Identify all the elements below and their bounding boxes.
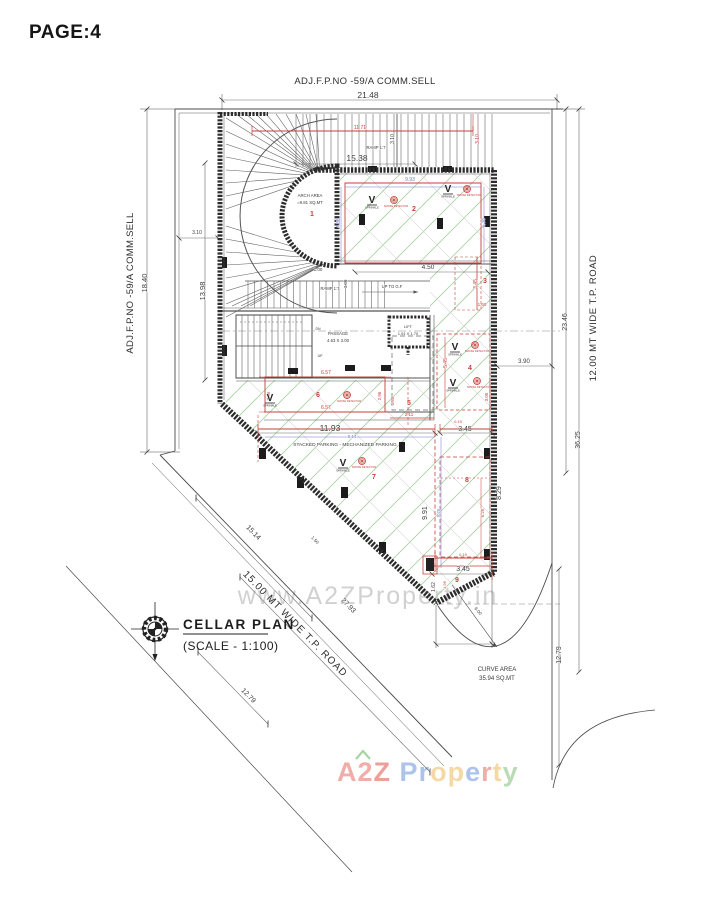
- sprinkler-icon: V: [445, 184, 452, 195]
- dimension-label: 8.14: [348, 434, 357, 439]
- dimension-label: 1.91 X 1.70: [398, 331, 419, 336]
- dimension-label: 23.46: [562, 313, 569, 331]
- smoke-detector-label: SMOKE DETECTOR: [352, 465, 376, 469]
- dimension-label: 4.38: [336, 218, 342, 228]
- plan-title: CELLAR PLAN: [183, 617, 295, 632]
- dimension-label: STACKED PARKING - MECHANIZED PARKING: [293, 442, 397, 448]
- dimension-label: 1.00: [314, 267, 323, 272]
- adjacent-plot-label-top: ADJ.F.P.NO -59/A COMM.SELL: [294, 76, 435, 87]
- sprinkler-label: SPRINKLE: [263, 404, 277, 408]
- parking-hatch-rightstrip: [0, 120, 710, 660]
- column-block: [359, 214, 365, 225]
- dimension-label: 2.11: [405, 412, 414, 417]
- dimension-label: 3.45: [473, 279, 479, 289]
- smoke-detector-label: SMOKE DETECTOR: [384, 204, 408, 208]
- sprinkler-label: SPRINKLE: [448, 353, 462, 357]
- dimension-label: 6.57: [321, 405, 331, 411]
- sprinkler-icon: V: [340, 458, 347, 469]
- smoke-detector-label: SMOKE DETECTOR: [465, 349, 489, 353]
- sprinkler-label: SPRINKLE: [336, 469, 350, 473]
- north-compass-icon: [131, 602, 179, 661]
- dimension-label: 12.79: [239, 687, 256, 705]
- column-block: [381, 365, 391, 371]
- dimension-label: 1.62: [431, 582, 437, 592]
- dimension-label: 3.45: [456, 566, 470, 573]
- parking-hatch-upper: [0, 120, 710, 660]
- dimension-label: ARCH AREA: [298, 193, 323, 198]
- sprinkler-icon: V: [450, 378, 457, 389]
- column-block: [222, 345, 227, 356]
- parking-space-number: 1: [310, 211, 314, 218]
- dimension-label: CURVE AREA: [478, 667, 517, 673]
- smoke-detector-icon: [474, 378, 481, 385]
- dimension-label: LIFT: [404, 324, 413, 329]
- drawing-sheet: { "page_label": "PAGE:4", "title": { "na…: [0, 0, 710, 919]
- sprinkler-label: SPRINKLE: [446, 389, 460, 393]
- smoke-detector-label: SMOKE DETECTOR: [337, 399, 361, 403]
- smoke-detector-icon: [344, 392, 351, 399]
- dimension-label: 5.45: [443, 358, 449, 368]
- stair-core: [236, 315, 312, 378]
- tip-column-block: [426, 558, 434, 571]
- column-block: [259, 448, 266, 459]
- dimension-label: 9.91: [422, 506, 429, 520]
- parking-space-number: 4: [468, 365, 472, 372]
- sprinkler-icon: V: [267, 393, 274, 404]
- dimension-label: 3.00: [343, 279, 348, 288]
- smoke-detector-icon: [359, 458, 366, 465]
- dimension-label: UP TO G.F: [382, 284, 403, 289]
- dimension-label: PASSAGE: [328, 331, 348, 336]
- dimension-label: 3.90: [518, 359, 530, 365]
- parking-space-number: 9: [455, 577, 459, 584]
- up-arrowhead-icon: [414, 290, 419, 293]
- dimension-label: 6.57: [321, 370, 331, 376]
- dimension-label: 1.50: [310, 535, 320, 545]
- sprinkler-label: SPRINKLE: [365, 206, 379, 210]
- dimension-label: 0.19: [459, 552, 468, 557]
- dimension-label: DN: [315, 327, 321, 331]
- column-block: [222, 257, 227, 268]
- sprinkler-icon: V: [452, 342, 459, 353]
- dimension-label: RAMP 1:7: [320, 286, 340, 291]
- dimension-label: RAMP 1:7: [366, 145, 386, 150]
- a2z-property-logo: A2Z Property: [337, 757, 519, 787]
- dimension-label: 11.71: [354, 125, 366, 131]
- dimension-label: 21.48: [357, 90, 379, 100]
- dimension-label: 8.29: [496, 486, 503, 500]
- dimension-label: 13.98: [198, 282, 207, 301]
- dimension-label: 18.40: [140, 274, 149, 293]
- dimension-label: 15.38: [346, 153, 368, 163]
- smoke-detector-icon: [464, 186, 471, 193]
- column-block: [288, 368, 298, 374]
- smoke-detector-label: SMOKE DETECTOR: [457, 193, 481, 197]
- dimension-label: 2.96: [377, 391, 382, 400]
- sprinkler-label: SPRINKLE: [441, 195, 455, 199]
- dimension-label: 1.60: [478, 302, 487, 307]
- dimension-label: 3.10: [192, 230, 202, 236]
- dimension-label: 6.25: [480, 508, 485, 517]
- dimension-label: 4.50: [422, 264, 435, 271]
- parking-space-number: 6: [316, 392, 320, 399]
- column-block: [437, 218, 443, 229]
- annotation-text-layer: 21.4811.713.103.10RAMP 1:715.389.93ARCH …: [140, 90, 582, 705]
- dimension-label: =9.81 SQ.MT: [297, 200, 323, 205]
- dimension-label: 36.25: [575, 431, 582, 449]
- dimension-label: 35.94 SQ.MT: [479, 676, 515, 682]
- smoke-detector-icon: [472, 342, 479, 349]
- parking-space-number: 5: [407, 400, 411, 407]
- smoke-detector-icon: [391, 197, 398, 204]
- column-block: [443, 166, 452, 172]
- dimension-label: 15.14: [244, 524, 261, 541]
- dimension-label: 3.05: [484, 392, 489, 401]
- dimension-label: 3.45: [458, 426, 472, 433]
- sprinkler-icon: V: [369, 195, 376, 206]
- column-block: [345, 365, 355, 371]
- cellar-plan-drawing: www.A2ZProperty.in A2Z Property: [0, 0, 710, 919]
- column-block: [341, 487, 348, 498]
- dimension-label: 9.93: [405, 177, 415, 183]
- parking-hatch-lower: [0, 120, 710, 660]
- dimension-label: 3.10: [475, 134, 481, 144]
- column-block: [399, 442, 405, 452]
- parking-space-number: 2: [412, 206, 416, 213]
- dimension-label: 0.19: [454, 419, 463, 424]
- smoke-detector-label: SMOKE DETECTOR: [467, 385, 491, 389]
- parking-space-number: 7: [372, 474, 376, 481]
- parking-space-number: 8: [465, 477, 469, 484]
- plan-scale: (SCALE - 1:100): [183, 639, 279, 653]
- dimension-label: UP: [318, 354, 324, 358]
- building-walls: [220, 112, 494, 603]
- parking-space-number: 3: [483, 278, 487, 285]
- dimension-label: 4.38: [481, 218, 487, 228]
- dimension-label: 3.10: [390, 134, 396, 144]
- dimension-label: 4.63 X 3.00: [327, 338, 350, 343]
- dimension-label: 1.96: [442, 580, 447, 589]
- dimension-label: 1.85: [390, 396, 395, 405]
- dimension-label: 12.79: [556, 646, 563, 664]
- right-road-label: 12.00 MT WIDE T.P. ROAD: [588, 255, 599, 382]
- dimension-label: 9.25: [436, 508, 441, 517]
- adjacent-plot-label-left: ADJ.F.P.NO -59/A COMM.SELL: [125, 212, 136, 353]
- structure-layer: [131, 112, 655, 788]
- road-corner-curve: [553, 710, 655, 788]
- dimension-label: 11.93: [320, 423, 341, 433]
